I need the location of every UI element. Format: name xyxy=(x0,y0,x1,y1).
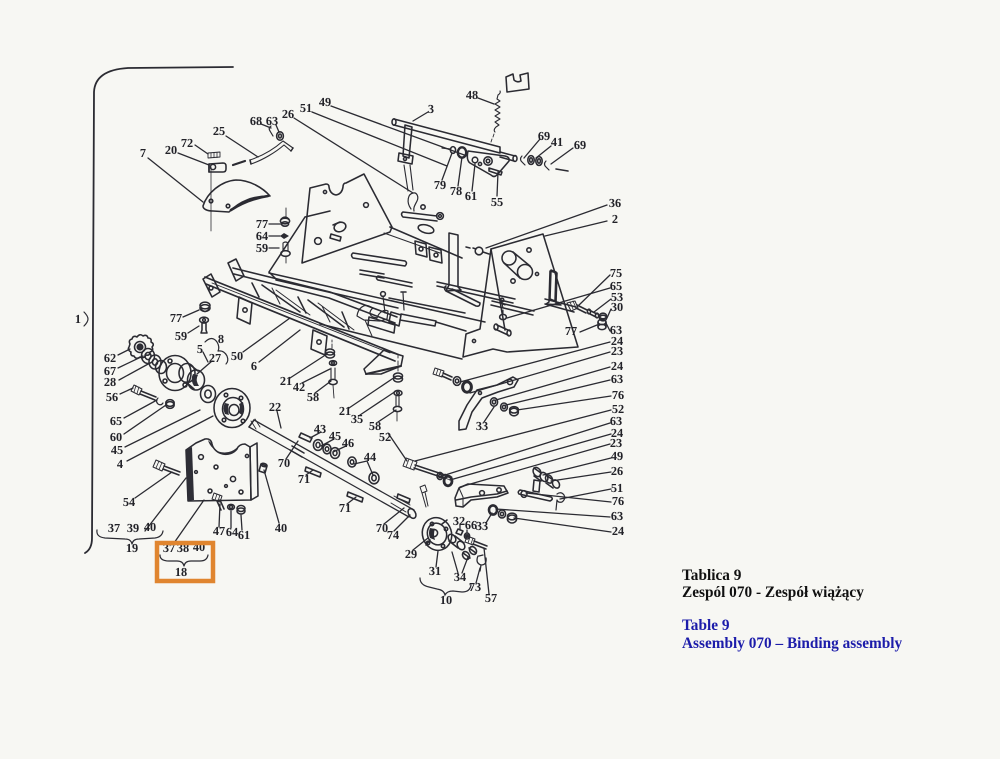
svg-text:18: 18 xyxy=(175,565,187,579)
svg-text:26: 26 xyxy=(611,464,623,478)
svg-text:77: 77 xyxy=(170,311,182,325)
svg-text:47: 47 xyxy=(213,524,225,538)
svg-text:31: 31 xyxy=(429,564,441,578)
svg-text:71: 71 xyxy=(339,501,351,515)
svg-text:3: 3 xyxy=(428,102,434,116)
svg-text:37: 37 xyxy=(108,521,120,535)
svg-text:24: 24 xyxy=(611,359,623,373)
svg-text:69: 69 xyxy=(538,129,550,143)
svg-text:60: 60 xyxy=(110,430,122,444)
svg-text:29: 29 xyxy=(405,547,417,561)
svg-text:65: 65 xyxy=(110,414,122,428)
svg-text:6: 6 xyxy=(251,359,257,373)
svg-text:40: 40 xyxy=(275,521,287,535)
svg-text:70: 70 xyxy=(278,456,290,470)
svg-text:5: 5 xyxy=(197,342,203,356)
svg-text:62: 62 xyxy=(104,351,116,365)
svg-text:59: 59 xyxy=(175,329,187,343)
svg-text:69: 69 xyxy=(574,138,586,152)
svg-text:41: 41 xyxy=(551,135,563,149)
svg-text:24: 24 xyxy=(612,524,624,538)
svg-text:1: 1 xyxy=(75,312,81,326)
svg-text:32: 32 xyxy=(453,514,465,528)
svg-text:45: 45 xyxy=(329,429,341,443)
svg-text:4: 4 xyxy=(117,457,123,471)
svg-text:21: 21 xyxy=(339,404,351,418)
svg-text:63: 63 xyxy=(266,114,278,128)
svg-text:57: 57 xyxy=(485,591,497,605)
svg-text:63: 63 xyxy=(611,372,623,386)
svg-text:55: 55 xyxy=(491,195,503,209)
svg-text:22: 22 xyxy=(269,400,281,414)
svg-text:39: 39 xyxy=(127,521,139,535)
svg-text:63: 63 xyxy=(611,509,623,523)
svg-text:33: 33 xyxy=(476,419,488,433)
svg-text:2: 2 xyxy=(612,212,618,226)
svg-text:46: 46 xyxy=(342,436,354,450)
svg-text:27: 27 xyxy=(209,351,221,365)
svg-text:43: 43 xyxy=(314,422,326,436)
svg-text:61: 61 xyxy=(465,189,477,203)
svg-text:42: 42 xyxy=(293,380,305,394)
svg-text:45: 45 xyxy=(111,443,123,457)
svg-text:23: 23 xyxy=(611,344,623,358)
svg-text:61: 61 xyxy=(238,528,250,542)
svg-text:76: 76 xyxy=(612,494,624,508)
svg-text:35: 35 xyxy=(351,412,363,426)
svg-text:21: 21 xyxy=(280,374,292,388)
svg-text:19: 19 xyxy=(126,541,138,555)
svg-text:20: 20 xyxy=(165,143,177,157)
svg-text:23: 23 xyxy=(610,436,622,450)
svg-text:76: 76 xyxy=(612,388,624,402)
svg-text:49: 49 xyxy=(611,449,623,463)
svg-text:26: 26 xyxy=(282,107,294,121)
svg-text:71: 71 xyxy=(298,472,310,486)
svg-text:59: 59 xyxy=(256,241,268,255)
svg-text:10: 10 xyxy=(440,593,452,607)
svg-text:28: 28 xyxy=(104,375,116,389)
svg-text:51: 51 xyxy=(611,481,623,495)
svg-text:34: 34 xyxy=(454,570,466,584)
svg-text:7: 7 xyxy=(140,146,146,160)
svg-text:64: 64 xyxy=(226,525,238,539)
svg-text:54: 54 xyxy=(123,495,135,509)
svg-text:77: 77 xyxy=(565,324,577,338)
svg-text:74: 74 xyxy=(387,528,399,542)
svg-text:40: 40 xyxy=(144,520,156,534)
svg-text:72: 72 xyxy=(181,136,193,150)
svg-text:51: 51 xyxy=(300,101,312,115)
svg-text:36: 36 xyxy=(609,196,621,210)
svg-text:33: 33 xyxy=(476,519,488,533)
svg-text:68: 68 xyxy=(250,114,262,128)
svg-text:79: 79 xyxy=(434,178,446,192)
svg-text:50: 50 xyxy=(231,349,243,363)
svg-text:30: 30 xyxy=(611,300,623,314)
svg-text:52: 52 xyxy=(379,430,391,444)
svg-text:78: 78 xyxy=(450,184,462,198)
svg-text:48: 48 xyxy=(466,88,478,102)
svg-text:49: 49 xyxy=(319,95,331,109)
svg-text:44: 44 xyxy=(364,450,376,464)
svg-text:25: 25 xyxy=(213,124,225,138)
svg-text:75: 75 xyxy=(610,266,622,280)
svg-text:58: 58 xyxy=(307,390,319,404)
svg-text:56: 56 xyxy=(106,390,118,404)
svg-text:8: 8 xyxy=(218,332,224,346)
